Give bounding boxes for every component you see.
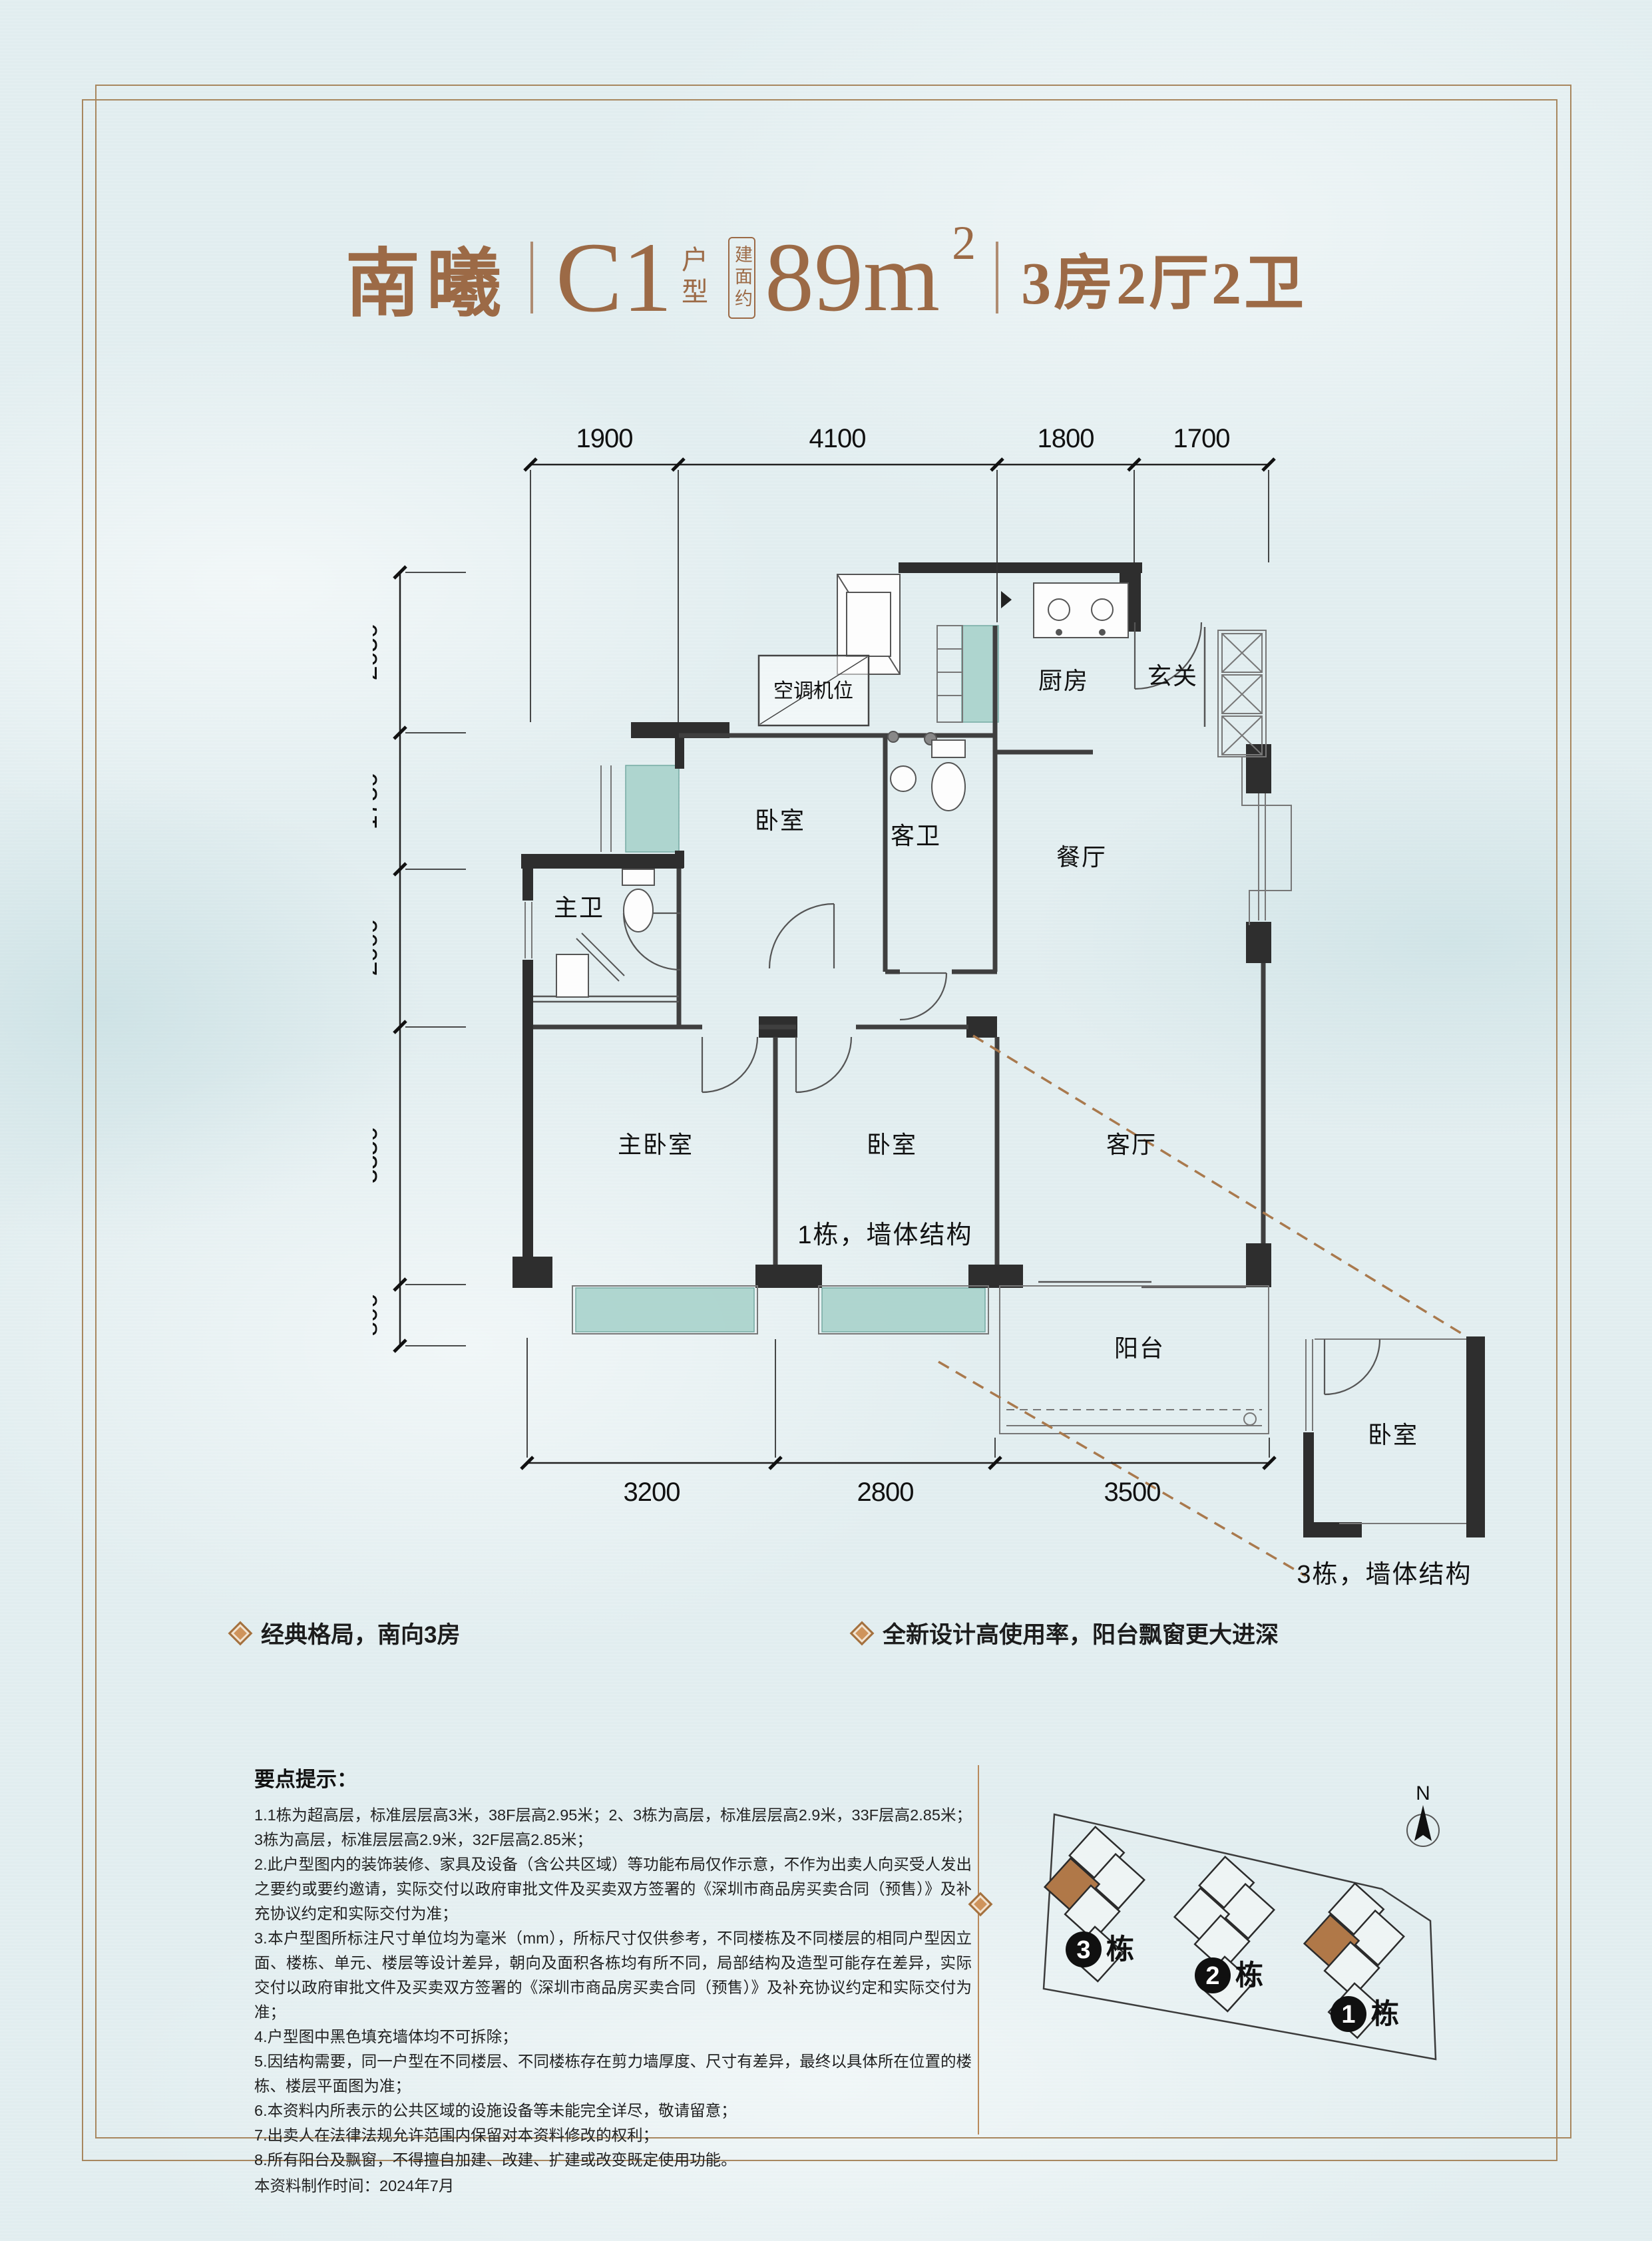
building-number: 3: [1076, 1936, 1090, 1964]
bedroom-top-label: 卧室: [755, 807, 805, 834]
dim-left-3350: 3350: [373, 1127, 383, 1184]
kitchen-label: 厨房: [1038, 667, 1089, 694]
feature-bullet-1: 经典格局，南向3房: [232, 1616, 460, 1650]
unit-type-group: C1 户型: [556, 228, 706, 327]
area-group: 建面约 89m 2: [728, 228, 973, 327]
living-label: 客厅: [1106, 1131, 1157, 1158]
building-cluster-2: [1149, 1857, 1303, 2011]
balcony-label: 阳台: [1114, 1334, 1165, 1362]
note-item: 1.1栋为超高层，标准层层高3米，38F层高2.95米；2、3栋为高层，标准层层…: [254, 1803, 972, 1852]
site-plan: N 3 栋: [1032, 1750, 1564, 2216]
dim-top-1700: 1700: [1173, 424, 1230, 453]
room-spec: 3房2厅2卫: [1021, 234, 1307, 321]
partition-walls: [533, 626, 1263, 1265]
note-item: 5.因结构需要，同一户型在不同楼层、不同楼栋存在剪力墙厚度、尺寸有差异，最终以具…: [254, 2049, 972, 2099]
unit-code: C1: [556, 228, 672, 327]
dim-top-1900: 1900: [576, 424, 633, 453]
leader-lines: [938, 1036, 1464, 1576]
area-value: 89m: [765, 228, 940, 327]
note-item: 4.户型图中黑色填充墙体均不可拆除；: [254, 2025, 972, 2049]
ac-label: 空调机位: [773, 680, 853, 702]
bedroom-mid-label: 卧室: [867, 1131, 917, 1158]
notes-title: 要点提示：: [254, 1762, 972, 1792]
feature-text: 经典格局，南向3房: [261, 1616, 460, 1650]
building-number: 1: [1341, 2001, 1355, 2029]
feature-bullet-2: 全新设计高使用率，阳台飘窗更大进深: [853, 1616, 1279, 1650]
floor-plan: 空调机位 厨房 玄关 卧室 客卫 餐厅 主卫 主卧室 卧室 客厅 阳台 卧室 1…: [373, 373, 1571, 1651]
note-item: 8.所有阳台及飘窗，不得擅自加建、改建、扩建或改变既定使用功能。: [254, 2148, 972, 2172]
flyer-page: { "colors":{ "accent_brown":"#9c6a46", "…: [0, 0, 1652, 2241]
dim-bottom-2800: 2800: [857, 1478, 914, 1507]
dim-left-2000: 2000: [373, 920, 383, 976]
page-title: 南曦 C1 户型 建面约 89m 2 3房2厅2卫: [0, 194, 1652, 361]
dim-left-2050: 2050: [373, 624, 383, 681]
building-number: 2: [1205, 1962, 1219, 1990]
entry-label: 玄关: [1147, 662, 1198, 690]
north-label: N: [1416, 1782, 1430, 1804]
dim-top-4100: 4100: [809, 424, 866, 453]
project-name: 南曦: [345, 224, 508, 331]
section-divider: [978, 1765, 979, 2135]
room-labels: 厨房 玄关 卧室 客卫 餐厅 主卫 主卧室 卧室 客厅 阳台 卧室 1栋，墙体结…: [554, 662, 1472, 1589]
caption-building3: 3栋，墙体结构: [1297, 1561, 1472, 1589]
key-notes: 要点提示： 1.1栋为超高层，标准层层高3米，38F层高2.95米；2、3栋为高…: [254, 1762, 972, 2198]
dim-bottom-3200: 3200: [624, 1478, 680, 1507]
unit-suffix: 户型: [679, 246, 706, 309]
master-bedroom-label: 主卧室: [618, 1131, 694, 1158]
master-bath-label: 主卫: [554, 894, 604, 921]
notes-date: 本资料制作时间：2024年7月: [254, 2174, 972, 2198]
area-note-box: 建面约: [728, 237, 755, 319]
building-suffix: 栋: [1371, 1998, 1399, 2029]
feature-text: 全新设计高使用率，阳台飘窗更大进深: [883, 1616, 1279, 1650]
building-suffix: 栋: [1235, 1959, 1263, 1991]
caption-building1: 1栋，墙体结构: [797, 1221, 972, 1249]
building-suffix: 栋: [1106, 1934, 1134, 1965]
diamond-icon: [850, 1621, 875, 1645]
note-item: 3.本户型图所标注尺寸单位均为毫米（mm），所标尺寸仅供参考，不同楼栋及不同楼层…: [254, 1926, 972, 2025]
title-separator-bar: [996, 242, 998, 313]
guest-bath-label: 客卫: [891, 822, 941, 849]
dim-bottom-3500: 3500: [1104, 1478, 1161, 1507]
detached-bedroom-label: 卧室: [1368, 1421, 1418, 1448]
north-arrow-icon: N: [1407, 1782, 1439, 1846]
dining-label: 餐厅: [1056, 843, 1107, 871]
dim-left-1750: 1750: [373, 773, 383, 830]
title-separator-bar: [530, 242, 533, 313]
note-item: 2.此户型图内的装饰装修、家具及设备（含公共区域）等功能布局仅作示意，不作为出卖…: [254, 1852, 972, 1926]
note-item: 7.出卖人在法律法规允许范围内保留对本资料修改的权利；: [254, 2123, 972, 2148]
dim-top-1800: 1800: [1038, 424, 1094, 453]
area-superscript: 2: [952, 219, 976, 267]
dim-left-800: 800: [373, 1294, 383, 1336]
ac-platform: 空调机位: [759, 656, 869, 725]
diamond-icon: [228, 1621, 253, 1645]
diamond-icon: [968, 1892, 993, 1917]
note-item: 6.本资料内所表示的公共区域的设施设备等未能完全详尽，敬请留意；: [254, 2099, 972, 2123]
